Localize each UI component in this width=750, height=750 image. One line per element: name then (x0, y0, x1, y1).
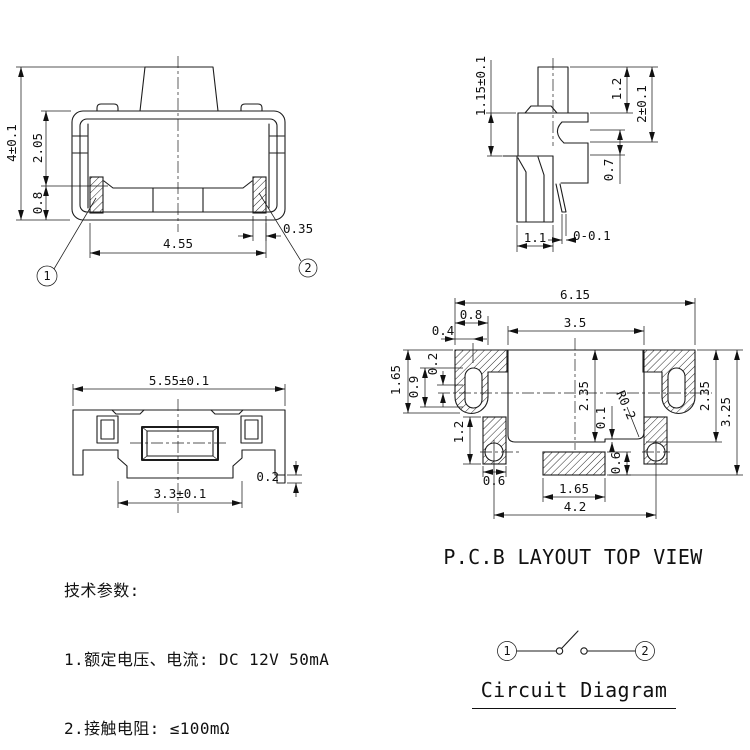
technical-drawing-page: 4±0.1 2.05 0.8 4.55 0.35 1 2 (0, 0, 750, 750)
pcb-slot-left (465, 368, 482, 408)
dim-stem-height: 1.2 (609, 78, 624, 101)
dim-body-height: 1.15±0.1 (473, 56, 488, 116)
dim-overall-width: 5.55±0.1 (149, 373, 209, 388)
dim-total-height: 4±0.1 (4, 124, 19, 162)
dim-pcb-pad-height: 1.65 (388, 365, 403, 395)
circuit-switch-lever (562, 631, 578, 648)
pcb-outline (438, 338, 712, 475)
pcb-slot-right (668, 368, 685, 408)
dim-terminal-width: 0.35 (283, 221, 313, 236)
dim-contact-depth: 0.7 (601, 159, 616, 182)
dim-upper-height: 2.05 (30, 133, 45, 163)
circuit-contact-left (556, 648, 562, 654)
dim-pcb-inner-depth: 2.35 (576, 381, 591, 411)
callout-2-label: 2 (304, 261, 311, 275)
dim-pcb-overall-width: 6.15 (560, 287, 590, 302)
front-view-dimensions: 4±0.1 2.05 0.8 4.55 0.35 1 2 (4, 67, 317, 286)
bottom-view: 5.55±0.1 3.3±0.1 0.2 (73, 373, 302, 513)
side-view: 1.15±0.1 1.2 2±0.1 0.7 1.1 0-0.1 (473, 56, 658, 252)
pcb-layout-view: 6.15 3.5 0.8 0.4 1.65 0.9 0.2 (388, 287, 743, 519)
front-view-outline (72, 56, 285, 232)
dim-pcb-step: 0.1 (593, 407, 608, 430)
circuit-contact-right (581, 648, 587, 654)
specs-title: 技术参数: (64, 579, 329, 602)
side-view-dimensions: 1.15±0.1 1.2 2±0.1 0.7 1.1 0-0.1 (473, 56, 658, 252)
dim-pcb-pad-lobe-width: 0.8 (460, 307, 483, 322)
dim-pcb-leg-span: 4.2 (564, 499, 587, 514)
dim-pcb-leg-pad-height: 1.2 (451, 421, 466, 444)
bottom-view-dimensions: 5.55±0.1 3.3±0.1 0.2 (73, 373, 302, 508)
terminal-2-section (253, 177, 266, 213)
dim-terminal-span: 4.55 (163, 236, 193, 251)
dim-pcb-overall-depth: 3.25 (718, 397, 733, 427)
callout-1-label: 1 (43, 269, 50, 283)
circuit-terminal-2-label: 2 (641, 644, 648, 658)
dim-pcb-hole-offset: 0.4 (432, 323, 455, 338)
pcb-center-pad (543, 452, 605, 475)
dim-tip-gap: 0-0.1 (573, 228, 611, 243)
dim-pcb-center-pad-height: 0.6 (608, 452, 623, 475)
dim-base-width: 1.1 (524, 230, 547, 245)
dim-pcb-slot-length: 0.9 (406, 376, 421, 399)
terminal-1-section (90, 177, 103, 213)
actuator-boss (142, 427, 218, 460)
dim-total-height-side: 2±0.1 (634, 85, 649, 123)
dim-pcb-center-pad-width: 1.65 (559, 481, 589, 496)
dim-pcb-inner-width: 3.5 (564, 315, 587, 330)
dim-lower-height: 0.8 (30, 192, 45, 215)
dim-skirt-width: 3.3±0.1 (154, 486, 207, 501)
pcb-layout-title: P.C.B LAYOUT TOP VIEW (437, 545, 709, 569)
spec-item-contact-resistance: 2.接触电阻: ≤100mΩ (64, 717, 329, 740)
dim-foot-step: 0.2 (256, 469, 279, 484)
circuit-terminal-1-label: 1 (503, 644, 510, 658)
spec-item-rated-voltage: 1.额定电压、电流: DC 12V 50mA (64, 648, 329, 671)
circuit-diagram-title: Circuit Diagram (472, 678, 676, 709)
technical-parameters: 技术参数: 1.额定电压、电流: DC 12V 50mA 2.接触电阻: ≤10… (64, 533, 329, 750)
front-view: 4±0.1 2.05 0.8 4.55 0.35 1 2 (4, 56, 317, 286)
dim-pcb-slot-offset: 0.2 (425, 353, 440, 376)
side-view-outline (503, 58, 588, 222)
circuit-diagram: 1 2 (498, 631, 655, 661)
dim-pcb-pad-depth: 2.35 (697, 381, 712, 411)
